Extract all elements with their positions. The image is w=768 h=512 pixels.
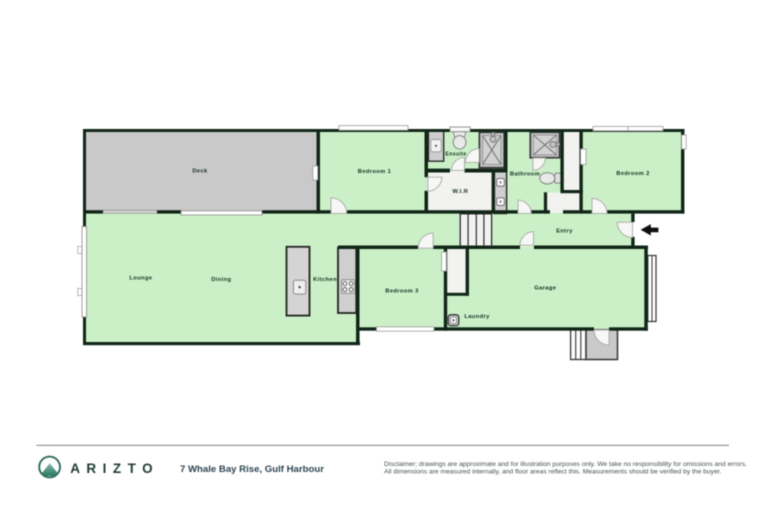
svg-text:Bedroom 2: Bedroom 2 bbox=[616, 171, 649, 177]
svg-text:All dimensions are measured in: All dimensions are measured internally, … bbox=[384, 468, 722, 475]
svg-text:7 Whale Bay Rise, Gulf Harbour: 7 Whale Bay Rise, Gulf Harbour bbox=[180, 464, 324, 475]
svg-text:Disclaimer; drawings are appro: Disclaimer; drawings are approximate and… bbox=[384, 461, 747, 468]
svg-text:Deck: Deck bbox=[192, 169, 208, 175]
svg-text:Kitchen: Kitchen bbox=[313, 277, 337, 283]
svg-text:Garage: Garage bbox=[534, 285, 557, 291]
svg-text:Lounge: Lounge bbox=[129, 276, 152, 282]
svg-text:Bedroom 1: Bedroom 1 bbox=[358, 169, 392, 175]
svg-text:Bedroom 3: Bedroom 3 bbox=[385, 289, 419, 295]
svg-text:Bathroom: Bathroom bbox=[510, 172, 540, 178]
svg-text:Entry: Entry bbox=[556, 228, 573, 234]
svg-text:Dining: Dining bbox=[211, 277, 231, 283]
svg-text:ARIZTO: ARIZTO bbox=[70, 461, 159, 476]
svg-text:W.I.R: W.I.R bbox=[452, 189, 468, 195]
svg-text:Laundry: Laundry bbox=[464, 314, 490, 320]
svg-text:Ensuite: Ensuite bbox=[445, 152, 466, 158]
